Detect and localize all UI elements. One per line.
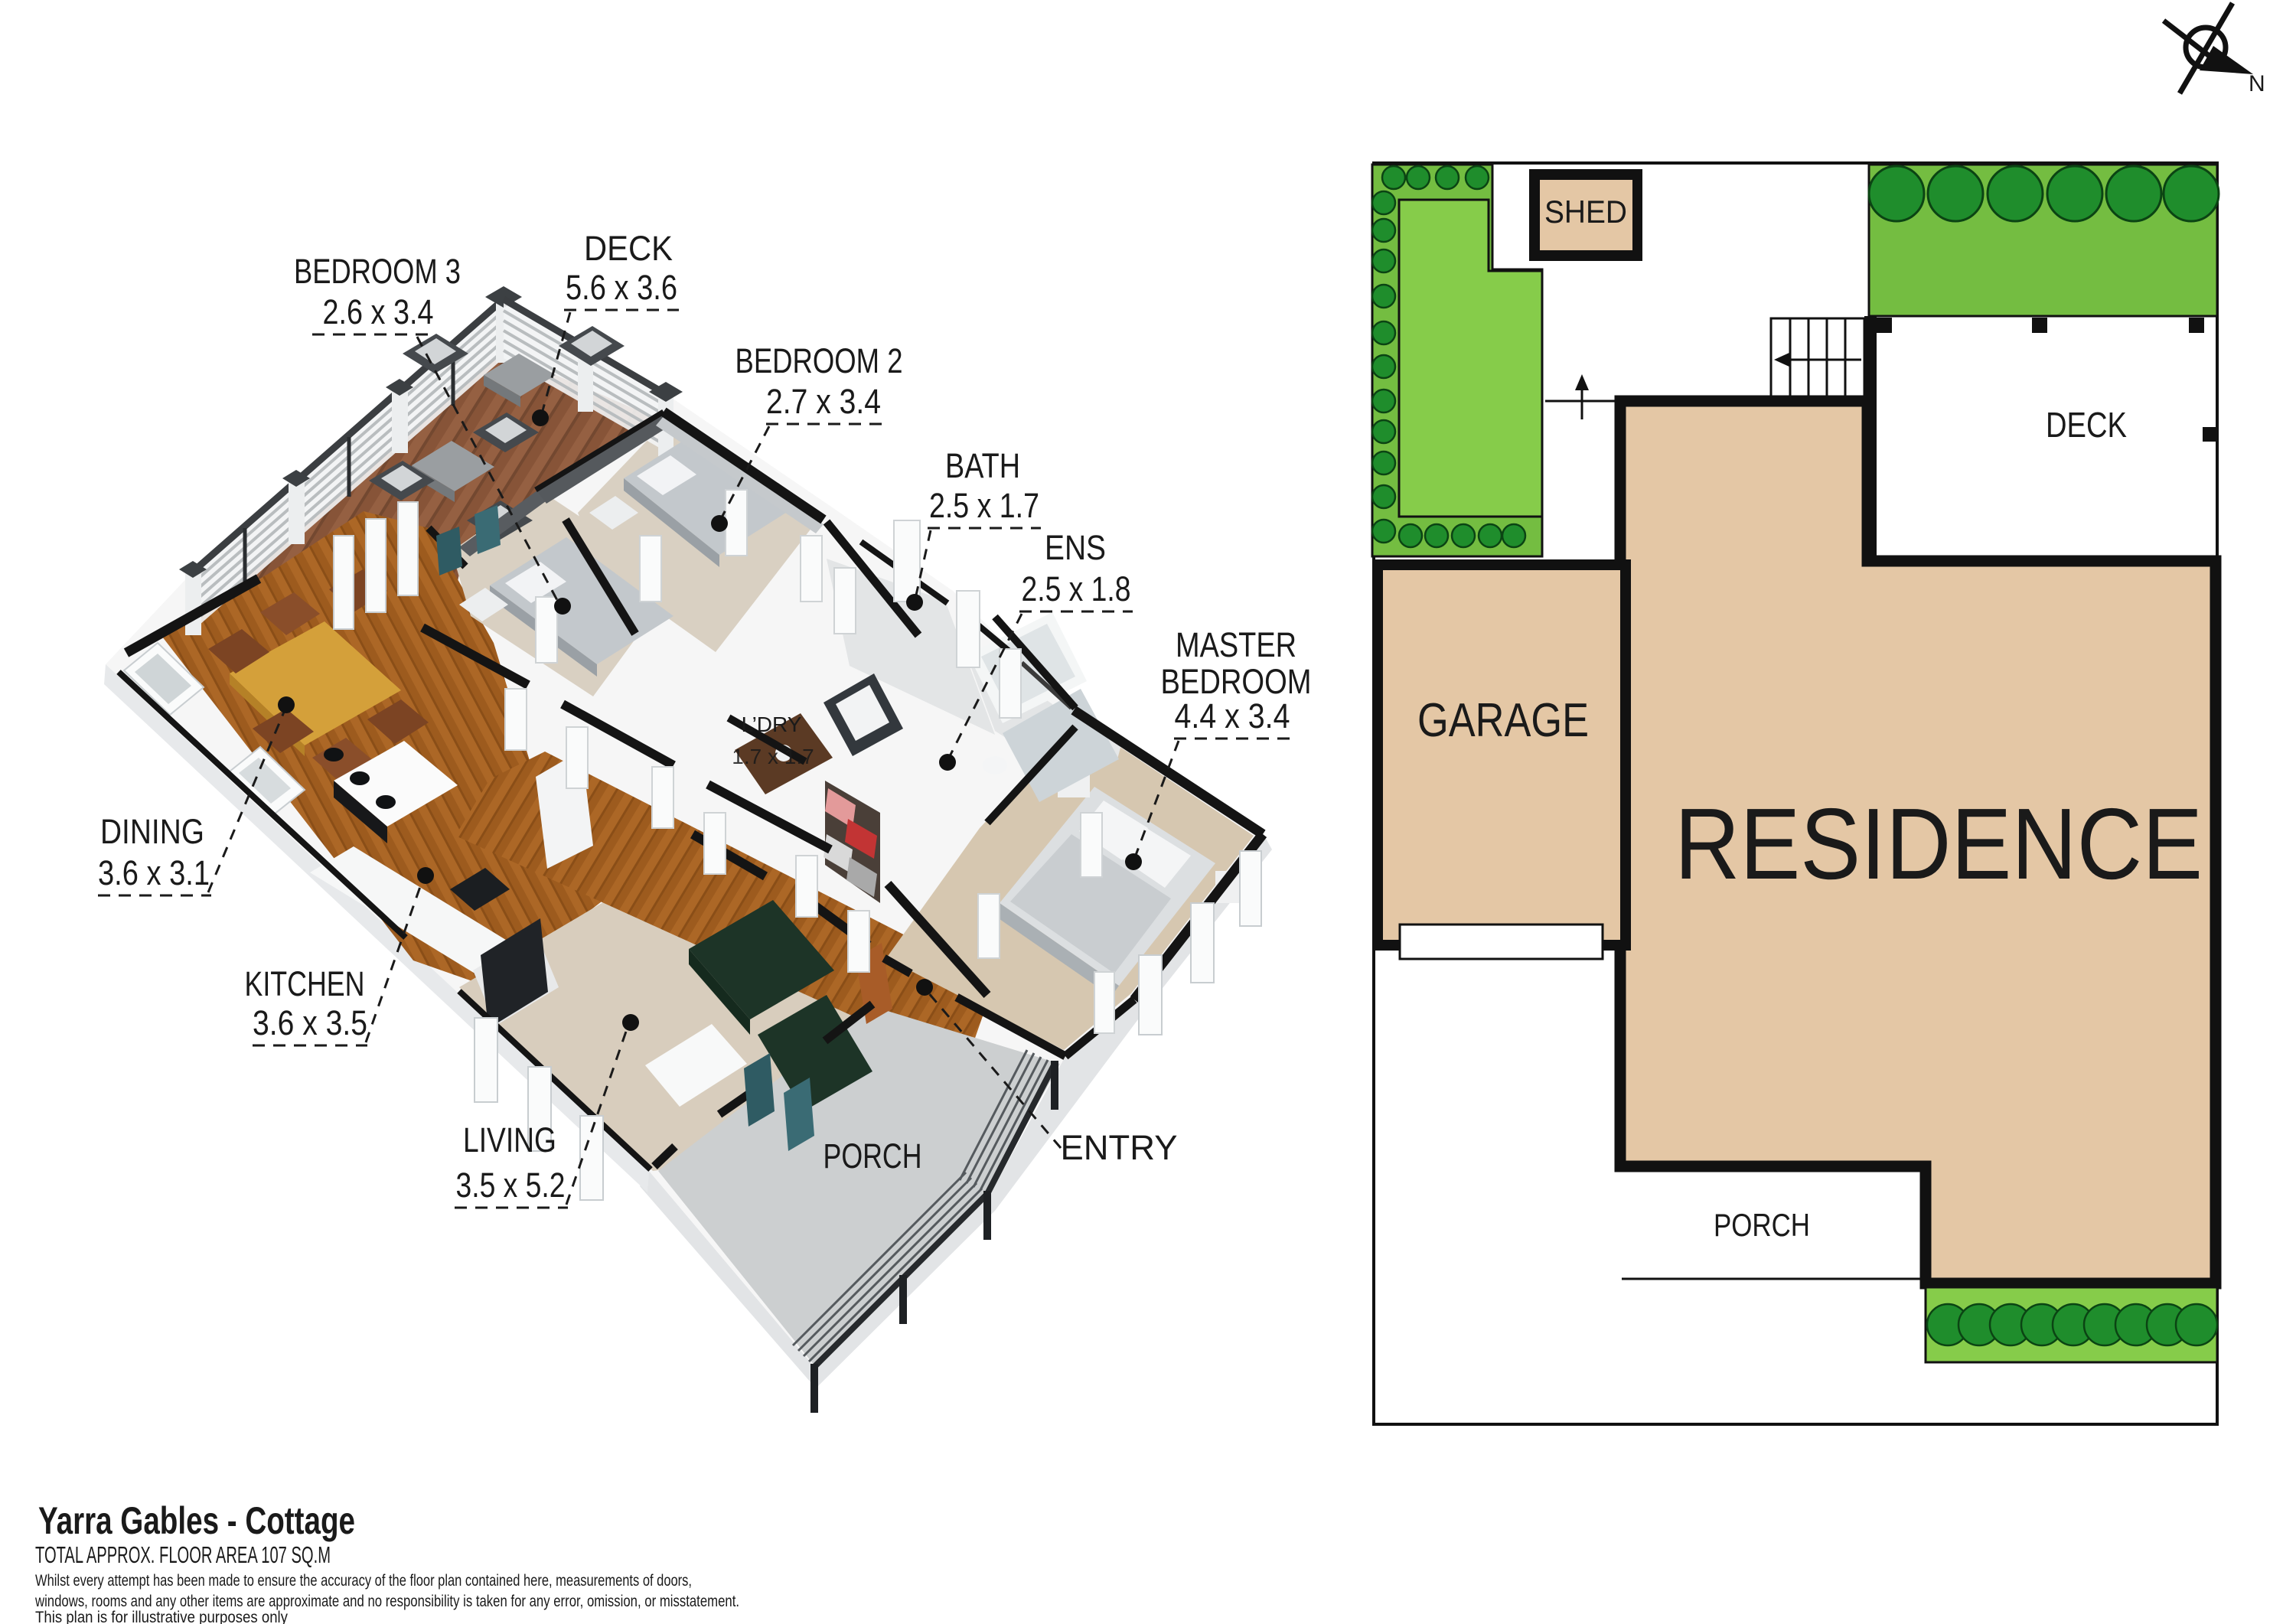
svg-text:PORCH: PORCH <box>823 1136 922 1176</box>
svg-text:MASTER: MASTER <box>1176 625 1296 664</box>
svg-text:windows, rooms and any other i: windows, rooms and any other items are a… <box>34 1593 739 1610</box>
svg-text:4.4 x 3.4: 4.4 x 3.4 <box>1175 696 1290 735</box>
svg-text:KITCHEN: KITCHEN <box>245 964 365 1003</box>
svg-text:DINING: DINING <box>100 812 204 851</box>
svg-text:BEDROOM 2: BEDROOM 2 <box>735 341 903 380</box>
svg-text:3.6 x 3.5: 3.6 x 3.5 <box>253 1003 367 1042</box>
svg-text:TOTAL APPROX. FLOOR AREA 107 S: TOTAL APPROX. FLOOR AREA 107 SQ.M <box>35 1541 331 1568</box>
svg-text:2.7 x 3.4: 2.7 x 3.4 <box>766 382 881 421</box>
svg-text:2.5 x 1.7: 2.5 x 1.7 <box>929 486 1039 525</box>
svg-text:L’DRY: L’DRY <box>742 713 802 736</box>
svg-text:1.7 x 1.7: 1.7 x 1.7 <box>732 745 814 768</box>
svg-text:N: N <box>2249 71 2265 96</box>
svg-text:PORCH: PORCH <box>1714 1207 1810 1243</box>
svg-text:LIVING: LIVING <box>463 1120 556 1159</box>
svg-text:BEDROOM: BEDROOM <box>1161 662 1312 701</box>
svg-text:This plan is for illustrative: This plan is for illustrative purposes o… <box>35 1609 288 1624</box>
svg-text:2.5 x 1.8: 2.5 x 1.8 <box>1022 569 1131 608</box>
svg-text:BATH: BATH <box>945 446 1020 485</box>
svg-text:DECK: DECK <box>584 229 673 268</box>
svg-text:3.5 x 5.2: 3.5 x 5.2 <box>456 1166 566 1205</box>
svg-text:RESIDENCE: RESIDENCE <box>1675 788 2203 900</box>
svg-text:BEDROOM 3: BEDROOM 3 <box>294 252 461 291</box>
svg-text:GARAGE: GARAGE <box>1417 694 1589 747</box>
svg-text:DECK: DECK <box>2046 405 2127 445</box>
svg-text:Whilst every attempt has been: Whilst every attempt has been made to en… <box>35 1572 692 1590</box>
svg-text:ENTRY: ENTRY <box>1061 1128 1178 1167</box>
svg-text:SHED: SHED <box>1544 194 1627 230</box>
svg-text:5.6 x 3.6: 5.6 x 3.6 <box>566 268 677 307</box>
svg-text:Yarra Gables - Cottage: Yarra Gables - Cottage <box>38 1499 355 1542</box>
svg-text:ENS: ENS <box>1045 528 1106 567</box>
svg-text:2.6 x 3.4: 2.6 x 3.4 <box>323 292 434 331</box>
svg-text:3.6 x 3.1: 3.6 x 3.1 <box>98 853 210 892</box>
